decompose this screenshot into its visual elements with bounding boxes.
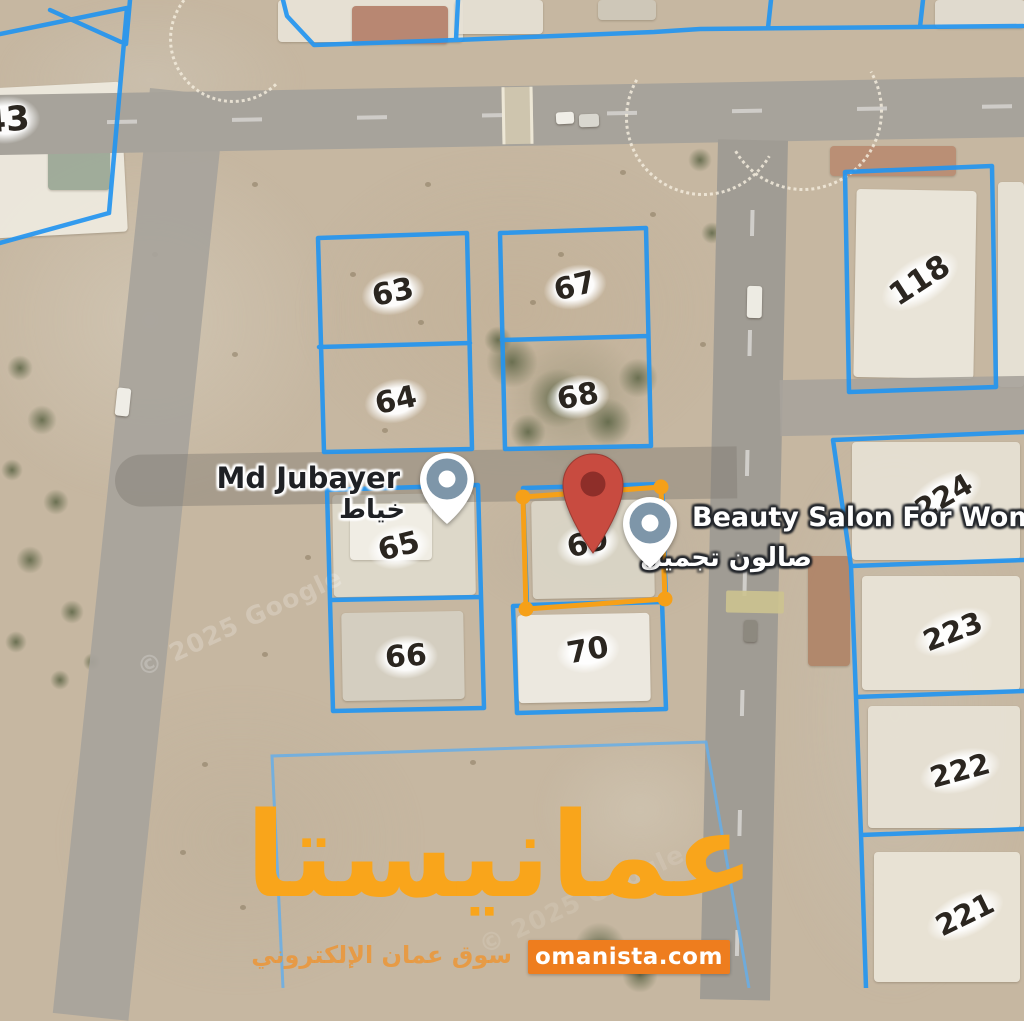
- brand-watermark: عمانيستا: [235, 788, 765, 924]
- watermark-layer: عمانيستا سوق عمان الإلكتروني omanista.co…: [0, 0, 1024, 988]
- satellite-map[interactable]: { "map": { "attribution": "© 2025 Google…: [0, 0, 1024, 988]
- brand-tagline: سوق عمان الإلكتروني: [292, 941, 512, 969]
- domain-badge: omanista.com: [528, 940, 730, 974]
